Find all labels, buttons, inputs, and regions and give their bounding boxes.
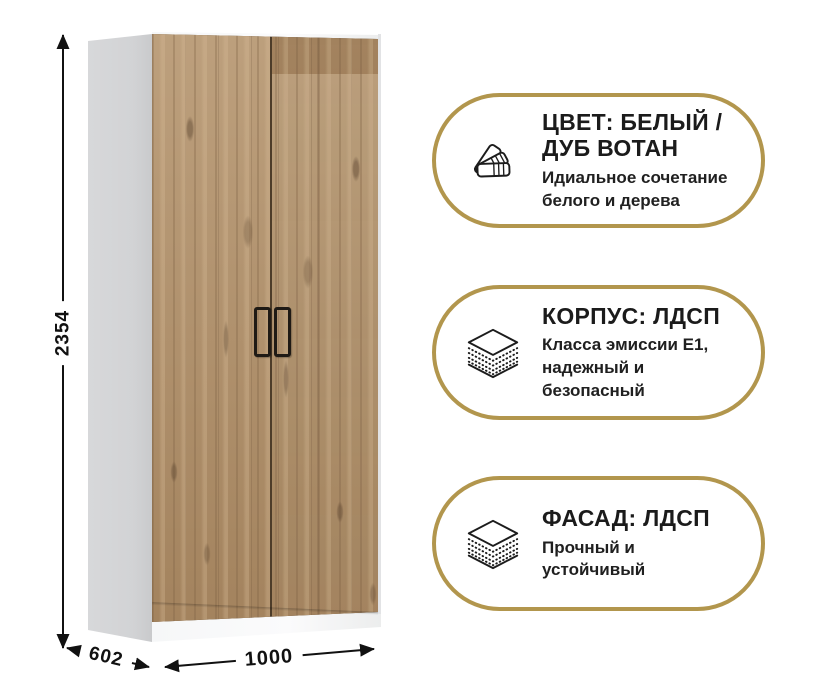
laminated-board-icon — [464, 515, 522, 573]
badge-body-sub-line2: надежный и — [542, 357, 720, 380]
wardrobe-doors — [152, 34, 378, 622]
feature-badge-facade: ФАСАД: ЛДСП Прочный и устойчивый — [432, 476, 765, 611]
badge-body-sub-line1: Класса эмиссии Е1, — [542, 334, 720, 357]
door-handle-left — [254, 307, 271, 357]
badge-color-sub-line1: Идиальное сочетание — [542, 167, 727, 190]
badge-color-title-line2: ДУБ ВОТАН — [542, 135, 727, 162]
product-infographic: 2354 602 1000 ЦВЕТ: БЕЛЫЙ — [0, 0, 816, 700]
laminated-board-icon — [464, 324, 522, 382]
badge-color-subtitle: Идиальное сочетание белого и дерева — [542, 167, 727, 212]
badge-body-title: КОРПУС: ЛДСП — [542, 303, 720, 330]
wardrobe-side-panel — [88, 33, 152, 642]
feature-badge-color: ЦВЕТ: БЕЛЫЙ / ДУБ ВОТАН Идиальное сочета… — [432, 93, 765, 228]
wardrobe-right-edge — [378, 34, 381, 614]
color-swatch-fan-icon — [464, 132, 522, 190]
badge-color-sub-line2: белого и дерева — [542, 190, 727, 213]
badge-facade-title: ФАСАД: ЛДСП — [542, 505, 710, 532]
badge-facade-sub-line1: Прочный и — [542, 537, 710, 560]
badge-facade-subtitle: Прочный и устойчивый — [542, 537, 710, 582]
dimension-depth-label: 602 — [78, 639, 135, 675]
dimension-height-label: 2354 — [51, 301, 76, 365]
badge-color-title: ЦВЕТ: БЕЛЫЙ / ДУБ ВОТАН — [542, 109, 727, 162]
badge-body-title-line1: КОРПУС: ЛДСП — [542, 303, 720, 330]
badge-body-subtitle: Класса эмиссии Е1, надежный и безопасный — [542, 334, 720, 402]
badge-facade-sub-line2: устойчивый — [542, 559, 710, 582]
badge-body-sub-line3: безопасный — [542, 380, 720, 403]
badge-facade-title-line1: ФАСАД: ЛДСП — [542, 505, 710, 532]
feature-badge-body: КОРПУС: ЛДСП Класса эмиссии Е1, надежный… — [432, 285, 765, 420]
wardrobe-door-left — [152, 34, 270, 622]
badge-color-title-line1: ЦВЕТ: БЕЛЫЙ / — [542, 109, 727, 136]
door-handle-right — [274, 307, 291, 357]
dimension-width-label: 1000 — [235, 642, 303, 673]
